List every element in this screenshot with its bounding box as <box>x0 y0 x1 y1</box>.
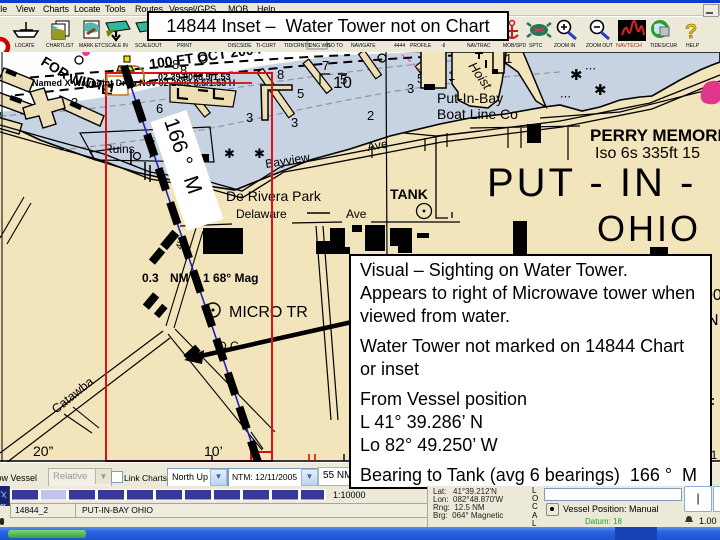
svg-text:PRINT: PRINT <box>177 43 192 49</box>
svg-text:-II: -II <box>441 43 445 49</box>
svg-text:02 39.8008.5/1.53: 02 39.8008.5/1.53 <box>158 72 231 82</box>
svg-text:TANK: TANK <box>390 186 428 202</box>
svg-text:OHIO: OHIO <box>597 208 701 249</box>
svg-text:MOB/SPD: MOB/SPD <box>503 43 526 49</box>
svg-text:LOCATE: LOCATE <box>15 43 35 49</box>
svg-text:8: 8 <box>172 57 179 72</box>
svg-text:Boat Line Co: Boat Line Co <box>437 106 518 122</box>
svg-text:De Rivera Park: De Rivera Park <box>226 188 322 204</box>
svg-text:7: 7 <box>322 58 329 73</box>
svg-text:CHARTLIST: CHARTLIST <box>46 43 74 49</box>
svg-text:HELP: HELP <box>686 43 700 49</box>
svg-text:PERRY MEMORIAL: PERRY MEMORIAL <box>590 126 720 145</box>
svg-text:⋯: ⋯ <box>585 63 596 75</box>
svg-text:10’: 10’ <box>204 443 223 459</box>
svg-text:3: 3 <box>291 115 298 130</box>
svg-text:1: 1 <box>505 52 512 66</box>
svg-text:8: 8 <box>277 67 284 82</box>
svg-text:✱: ✱ <box>254 146 265 161</box>
svg-text:2: 2 <box>367 108 374 123</box>
svg-text:✱: ✱ <box>224 146 235 161</box>
svg-text:TI-CURT: TI-CURT <box>256 43 276 49</box>
svg-text:MARK ETC: MARK ETC <box>79 43 105 49</box>
svg-text:3: 3 <box>71 95 78 110</box>
svg-text:⋯: ⋯ <box>560 91 571 103</box>
svg-text:DISCSIDE: DISCSIDE <box>228 43 252 49</box>
svg-text:PROFILE: PROFILE <box>410 43 432 49</box>
svg-text:SCALE IN: SCALE IN <box>105 43 128 49</box>
svg-text:✱: ✱ <box>594 82 607 99</box>
svg-text:1 68° Mag: 1 68° Mag <box>203 271 259 285</box>
svg-text:✱: ✱ <box>570 67 583 84</box>
svg-text:Put-In-Bay: Put-In-Bay <box>437 90 503 106</box>
svg-text:SPTC: SPTC <box>529 43 543 49</box>
svg-text:NAVTECH: NAVTECH <box>616 43 642 49</box>
svg-text:3: 3 <box>246 110 253 125</box>
svg-text:10: 10 <box>333 73 352 92</box>
svg-text:1: 1 <box>448 68 455 83</box>
svg-text:Ruins: Ruins <box>104 142 135 156</box>
svg-text:PUT - IN -: PUT - IN - <box>487 161 696 205</box>
svg-text:Iso 6s 335ft 15: Iso 6s 335ft 15 <box>595 145 700 162</box>
svg-text:Delaware: Delaware <box>236 207 287 221</box>
svg-text:5: 5 <box>297 86 304 101</box>
svg-text:20”: 20” <box>33 443 54 459</box>
svg-text:ZOOM IN: ZOOM IN <box>554 43 576 49</box>
svg-text:3: 3 <box>407 81 414 96</box>
svg-text:NM: NM <box>170 271 189 285</box>
svg-text:TIDES/CUR: TIDES/CUR <box>650 43 677 49</box>
svg-text:?: ? <box>685 21 697 43</box>
svg-text:DNG WH: DNG WH <box>309 43 330 49</box>
svg-text:6: 6 <box>156 101 163 116</box>
svg-text:4444: 4444 <box>394 43 405 49</box>
svg-text:NAVIGATE: NAVIGATE <box>351 43 376 49</box>
svg-text:ZOOM OUT: ZOOM OUT <box>586 43 613 49</box>
svg-text:NAVTRAC: NAVTRAC <box>467 43 491 49</box>
svg-text:SCALEOUT: SCALEOUT <box>135 43 162 49</box>
svg-text:0.3: 0.3 <box>142 271 159 285</box>
svg-text:MICRO TR: MICRO TR <box>229 304 308 321</box>
svg-text:Ave: Ave <box>346 207 367 221</box>
